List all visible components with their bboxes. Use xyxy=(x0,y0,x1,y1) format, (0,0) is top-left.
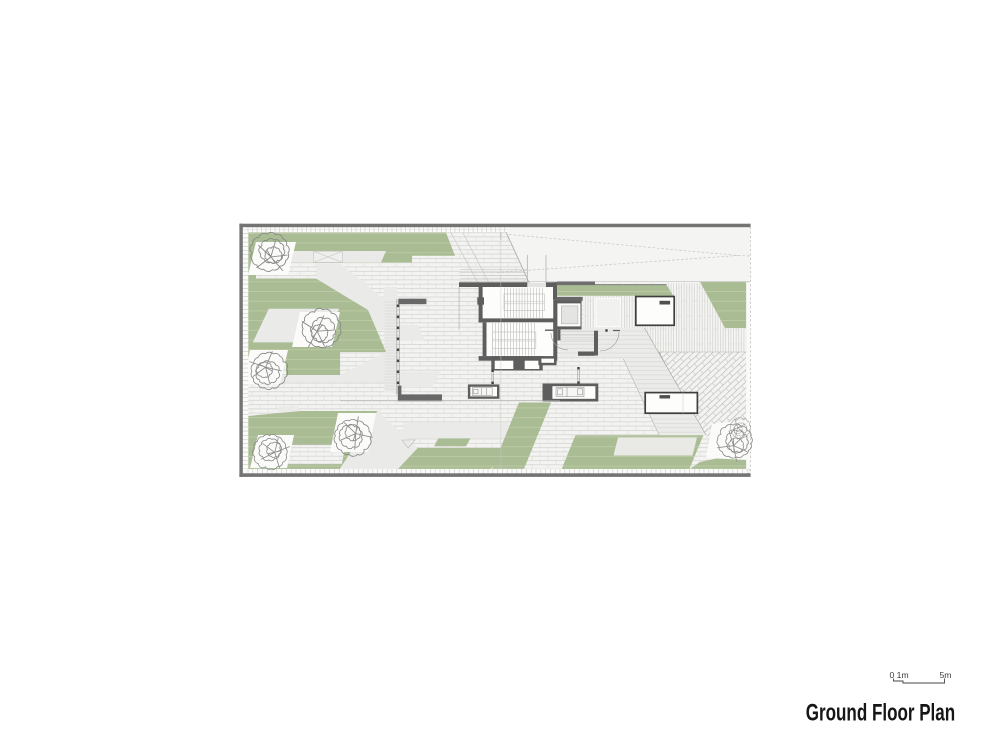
svg-text:0 1m: 0 1m xyxy=(890,670,909,680)
svg-text:5m: 5m xyxy=(940,670,952,680)
svg-text:Ground Floor Plan: Ground Floor Plan xyxy=(806,699,955,726)
